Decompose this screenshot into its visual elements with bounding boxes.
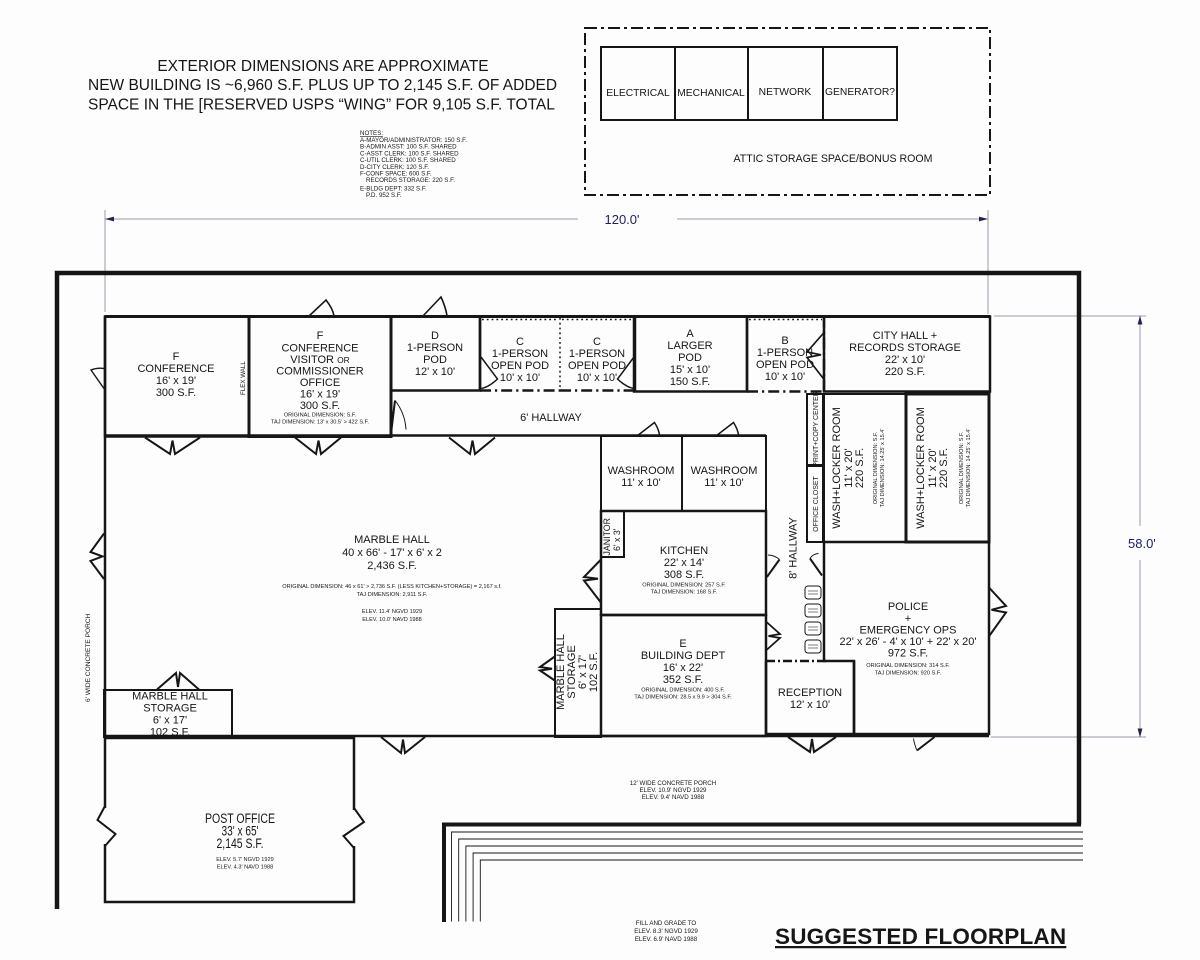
- svg-text:JANITOR: JANITOR: [602, 518, 612, 555]
- svg-text:PRINT+COPY CENTER: PRINT+COPY CENTER: [813, 391, 820, 467]
- svg-text:OFFICE CLOSET: OFFICE CLOSET: [813, 475, 820, 531]
- svg-text:150 S.F.: 150 S.F.: [670, 376, 710, 388]
- svg-text:ORIGINAL DIMENSION: S.F.: ORIGINAL DIMENSION: S.F.: [959, 431, 965, 504]
- svg-text:GENERATOR?: GENERATOR?: [825, 87, 895, 98]
- svg-text:ELEV. 9.4' NAVD 1988: ELEV. 9.4' NAVD 1988: [642, 794, 705, 801]
- svg-text:BUILDING DEPT: BUILDING DEPT: [641, 650, 726, 662]
- svg-text:ORIGINAL DIMENSION: 46 x 61' >: ORIGINAL DIMENSION: 46 x 61' > 2,736 S.F…: [282, 584, 502, 590]
- svg-text:WASHROOM: WASHROOM: [691, 465, 758, 477]
- svg-text:MARBLE HALL: MARBLE HALL: [132, 691, 208, 703]
- svg-text:16' x 19': 16' x 19': [156, 375, 196, 387]
- svg-text:300 S.F.: 300 S.F.: [156, 387, 196, 399]
- svg-text:ELEV. 8.3' NGVD 1929: ELEV. 8.3' NGVD 1929: [634, 928, 698, 935]
- svg-text:NETWORK: NETWORK: [759, 87, 812, 98]
- svg-text:15' x 10': 15' x 10': [670, 364, 710, 376]
- svg-text:CONFERENCE: CONFERENCE: [137, 363, 214, 375]
- svg-text:E: E: [679, 638, 686, 650]
- svg-text:RECEPTION: RECEPTION: [778, 687, 842, 699]
- svg-text:ELEV. 10.9' NGVD 1929: ELEV. 10.9' NGVD 1929: [640, 787, 708, 794]
- svg-text:16' x 19': 16' x 19': [300, 389, 340, 401]
- svg-text:F: F: [317, 330, 324, 342]
- svg-text:10' x 10': 10' x 10': [765, 371, 805, 383]
- svg-text:ORIGINAL DIMENSION: S.F.: ORIGINAL DIMENSION: S.F.: [284, 413, 357, 419]
- svg-text:972 S.F.: 972 S.F.: [888, 648, 928, 660]
- svg-text:SPACE IN THE [RESERVED USPS “W: SPACE IN THE [RESERVED USPS “WING” FOR 9…: [88, 97, 555, 114]
- svg-text:POLICE: POLICE: [888, 601, 928, 613]
- svg-text:EXTERIOR DIMENSIONS ARE APPROX: EXTERIOR DIMENSIONS ARE APPROXIMATE: [157, 58, 488, 75]
- svg-text:ORIGINAL DIMENSION: 257 S.F.: ORIGINAL DIMENSION: 257 S.F.: [642, 583, 726, 589]
- svg-text:CITY HALL +: CITY HALL +: [873, 330, 938, 342]
- svg-text:ELECTRICAL: ELECTRICAL: [606, 88, 670, 99]
- svg-text:300 S.F.: 300 S.F.: [300, 400, 340, 412]
- svg-text:22' x 10': 22' x 10': [885, 354, 925, 366]
- svg-text:A: A: [686, 328, 694, 340]
- svg-text:ORIGINAL DIMENSION: 400 S.F.: ORIGINAL DIMENSION: 400 S.F.: [641, 688, 725, 694]
- svg-text:KITCHEN: KITCHEN: [660, 545, 708, 557]
- svg-text:11' x 10': 11' x 10': [704, 477, 743, 489]
- svg-text:ELEV. 5.7' NGVD 1929: ELEV. 5.7' NGVD 1929: [216, 857, 273, 863]
- svg-text:102 S.F.: 102 S.F.: [588, 652, 600, 692]
- svg-text:TAJ DIMENSION: 28.5 x 9.9 > 30: TAJ DIMENSION: 28.5 x 9.9 > 304 S.F.: [634, 695, 732, 701]
- svg-text:P.D. 952 S.F.: P.D. 952 S.F.: [366, 192, 402, 199]
- svg-text:12' x 10': 12' x 10': [790, 699, 830, 711]
- svg-text:6' x 3': 6' x 3': [612, 528, 622, 551]
- svg-text:1-PERSON: 1-PERSON: [407, 342, 463, 354]
- svg-text:10' x 10': 10' x 10': [577, 372, 617, 384]
- svg-text:220 S.F.: 220 S.F.: [885, 366, 925, 378]
- svg-text:1-PERSON: 1-PERSON: [492, 348, 548, 360]
- svg-text:16' x 22': 16' x 22': [663, 662, 703, 674]
- svg-text:12' x 10': 12' x 10': [415, 366, 455, 378]
- svg-text:6' HALLWAY: 6' HALLWAY: [520, 412, 582, 424]
- svg-text:POD: POD: [678, 352, 702, 364]
- svg-text:22' x 26' - 4' x 10' + 22' x 2: 22' x 26' - 4' x 10' + 22' x 20': [839, 636, 976, 648]
- svg-text:308 S.F.: 308 S.F.: [664, 569, 704, 581]
- svg-text:OPEN POD: OPEN POD: [491, 360, 549, 372]
- svg-text:B: B: [781, 335, 788, 347]
- svg-text:MARBLE HALL: MARBLE HALL: [354, 534, 430, 546]
- svg-text:TAJ DIMENSION: 14.25' x 15.4': TAJ DIMENSION: 14.25' x 15.4': [966, 429, 972, 508]
- svg-text:RECORDS STORAGE: RECORDS STORAGE: [849, 342, 961, 354]
- svg-text:WASH+LOCKER ROOM: WASH+LOCKER ROOM: [831, 407, 843, 529]
- svg-text:+: +: [905, 613, 911, 625]
- svg-text:D: D: [431, 330, 439, 342]
- svg-text:TAJ DIMENSION: 168 S.F.: TAJ DIMENSION: 168 S.F.: [651, 590, 718, 596]
- svg-text:NEW BUILDING IS ~6,960 S.F. PL: NEW BUILDING IS ~6,960 S.F. PLUS UP TO 2…: [88, 77, 557, 94]
- svg-text:ORIGINAL DIMENSION: 314 S.F.: ORIGINAL DIMENSION: 314 S.F.: [866, 663, 950, 669]
- svg-text:ELEV. 10.0' NAVD 1988: ELEV. 10.0' NAVD 1988: [362, 617, 422, 623]
- svg-text:1-PERSON: 1-PERSON: [569, 348, 625, 360]
- svg-text:352 S.F.: 352 S.F.: [663, 674, 703, 686]
- svg-text:TAJ DIMENSION: 2,911 S.F.: TAJ DIMENSION: 2,911 S.F.: [357, 592, 428, 598]
- svg-text:RECORDS STORAGE: 220 S.F.: RECORDS STORAGE: 220 S.F.: [366, 177, 455, 184]
- svg-text:STORAGE: STORAGE: [143, 703, 197, 715]
- svg-text:12' WIDE CONCRETE PORCH: 12' WIDE CONCRETE PORCH: [630, 780, 716, 787]
- svg-text:C: C: [516, 336, 524, 348]
- svg-text:102 S.F.: 102 S.F.: [150, 727, 190, 739]
- svg-text:TAJ DIMENSION: 920 S.F.: TAJ DIMENSION: 920 S.F.: [875, 671, 942, 677]
- svg-text:22' x 14': 22' x 14': [664, 557, 704, 569]
- svg-text:MECHANICAL: MECHANICAL: [677, 88, 745, 99]
- svg-text:10' x 10': 10' x 10': [500, 372, 540, 384]
- svg-text:TAJ DIMENSION: 13' x 30.5' > 4: TAJ DIMENSION: 13' x 30.5' > 422 S.F.: [271, 420, 369, 426]
- svg-text:6' x 17': 6' x 17': [153, 715, 187, 727]
- svg-text:OPEN POD: OPEN POD: [756, 359, 814, 371]
- svg-text:COMMISSIONER: COMMISSIONER: [276, 366, 363, 378]
- svg-text:NOTES:: NOTES:: [360, 130, 383, 137]
- svg-text:WASH+LOCKER ROOM: WASH+LOCKER ROOM: [915, 407, 927, 529]
- svg-text:ELEV. 4.3' NAVD 1988: ELEV. 4.3' NAVD 1988: [217, 865, 273, 871]
- svg-text:ATTIC STORAGE SPACE/BONUS ROOM: ATTIC STORAGE SPACE/BONUS ROOM: [734, 153, 933, 165]
- svg-text:OPEN POD: OPEN POD: [568, 360, 626, 372]
- svg-text:EMERGENCY OPS: EMERGENCY OPS: [860, 625, 957, 637]
- svg-text:VISITOR OR: VISITOR OR: [290, 354, 350, 366]
- svg-text:ELEV. 6.9' NAVD 1988: ELEV. 6.9' NAVD 1988: [635, 936, 698, 943]
- svg-text:120.0': 120.0': [604, 212, 639, 227]
- svg-text:1-PERSON: 1-PERSON: [757, 347, 813, 359]
- svg-text:ELEV. 11.4' NGVD 1929: ELEV. 11.4' NGVD 1929: [362, 609, 422, 615]
- svg-text:220 S.F.: 220 S.F.: [938, 448, 950, 488]
- svg-text:6' WIDE CONCRETE PORCH: 6' WIDE CONCRETE PORCH: [85, 613, 92, 702]
- svg-text:2,436 S.F.: 2,436 S.F.: [367, 560, 417, 572]
- svg-text:SUGGESTED FLOORPLAN: SUGGESTED FLOORPLAN: [775, 924, 1066, 949]
- svg-text:11' x 10': 11' x 10': [621, 477, 660, 489]
- svg-text:CONFERENCE: CONFERENCE: [281, 343, 358, 355]
- svg-text:2,145 S.F.: 2,145 S.F.: [217, 836, 264, 851]
- svg-text:FLEX WALL: FLEX WALL: [240, 361, 247, 395]
- svg-text:F: F: [173, 351, 180, 363]
- svg-text:C: C: [593, 336, 601, 348]
- svg-text:FILL AND GRADE TO: FILL AND GRADE TO: [636, 920, 697, 927]
- svg-text:POD: POD: [423, 354, 447, 366]
- svg-text:8' HALLWAY: 8' HALLWAY: [788, 516, 800, 578]
- svg-text:58.0': 58.0': [1128, 536, 1156, 551]
- svg-text:WASHROOM: WASHROOM: [608, 465, 675, 477]
- svg-text:40 x 66' - 17' x 6' x 2: 40 x 66' - 17' x 6' x 2: [342, 547, 442, 559]
- svg-text:ORIGINAL DIMENSION: S.F.: ORIGINAL DIMENSION: S.F.: [873, 431, 879, 504]
- svg-text:220 S.F.: 220 S.F.: [854, 448, 866, 488]
- svg-text:TAJ DIMENSION: 14.25' x 15.4': TAJ DIMENSION: 14.25' x 15.4': [880, 429, 886, 508]
- svg-text:OFFICE: OFFICE: [300, 377, 340, 389]
- svg-text:LARGER: LARGER: [667, 340, 712, 352]
